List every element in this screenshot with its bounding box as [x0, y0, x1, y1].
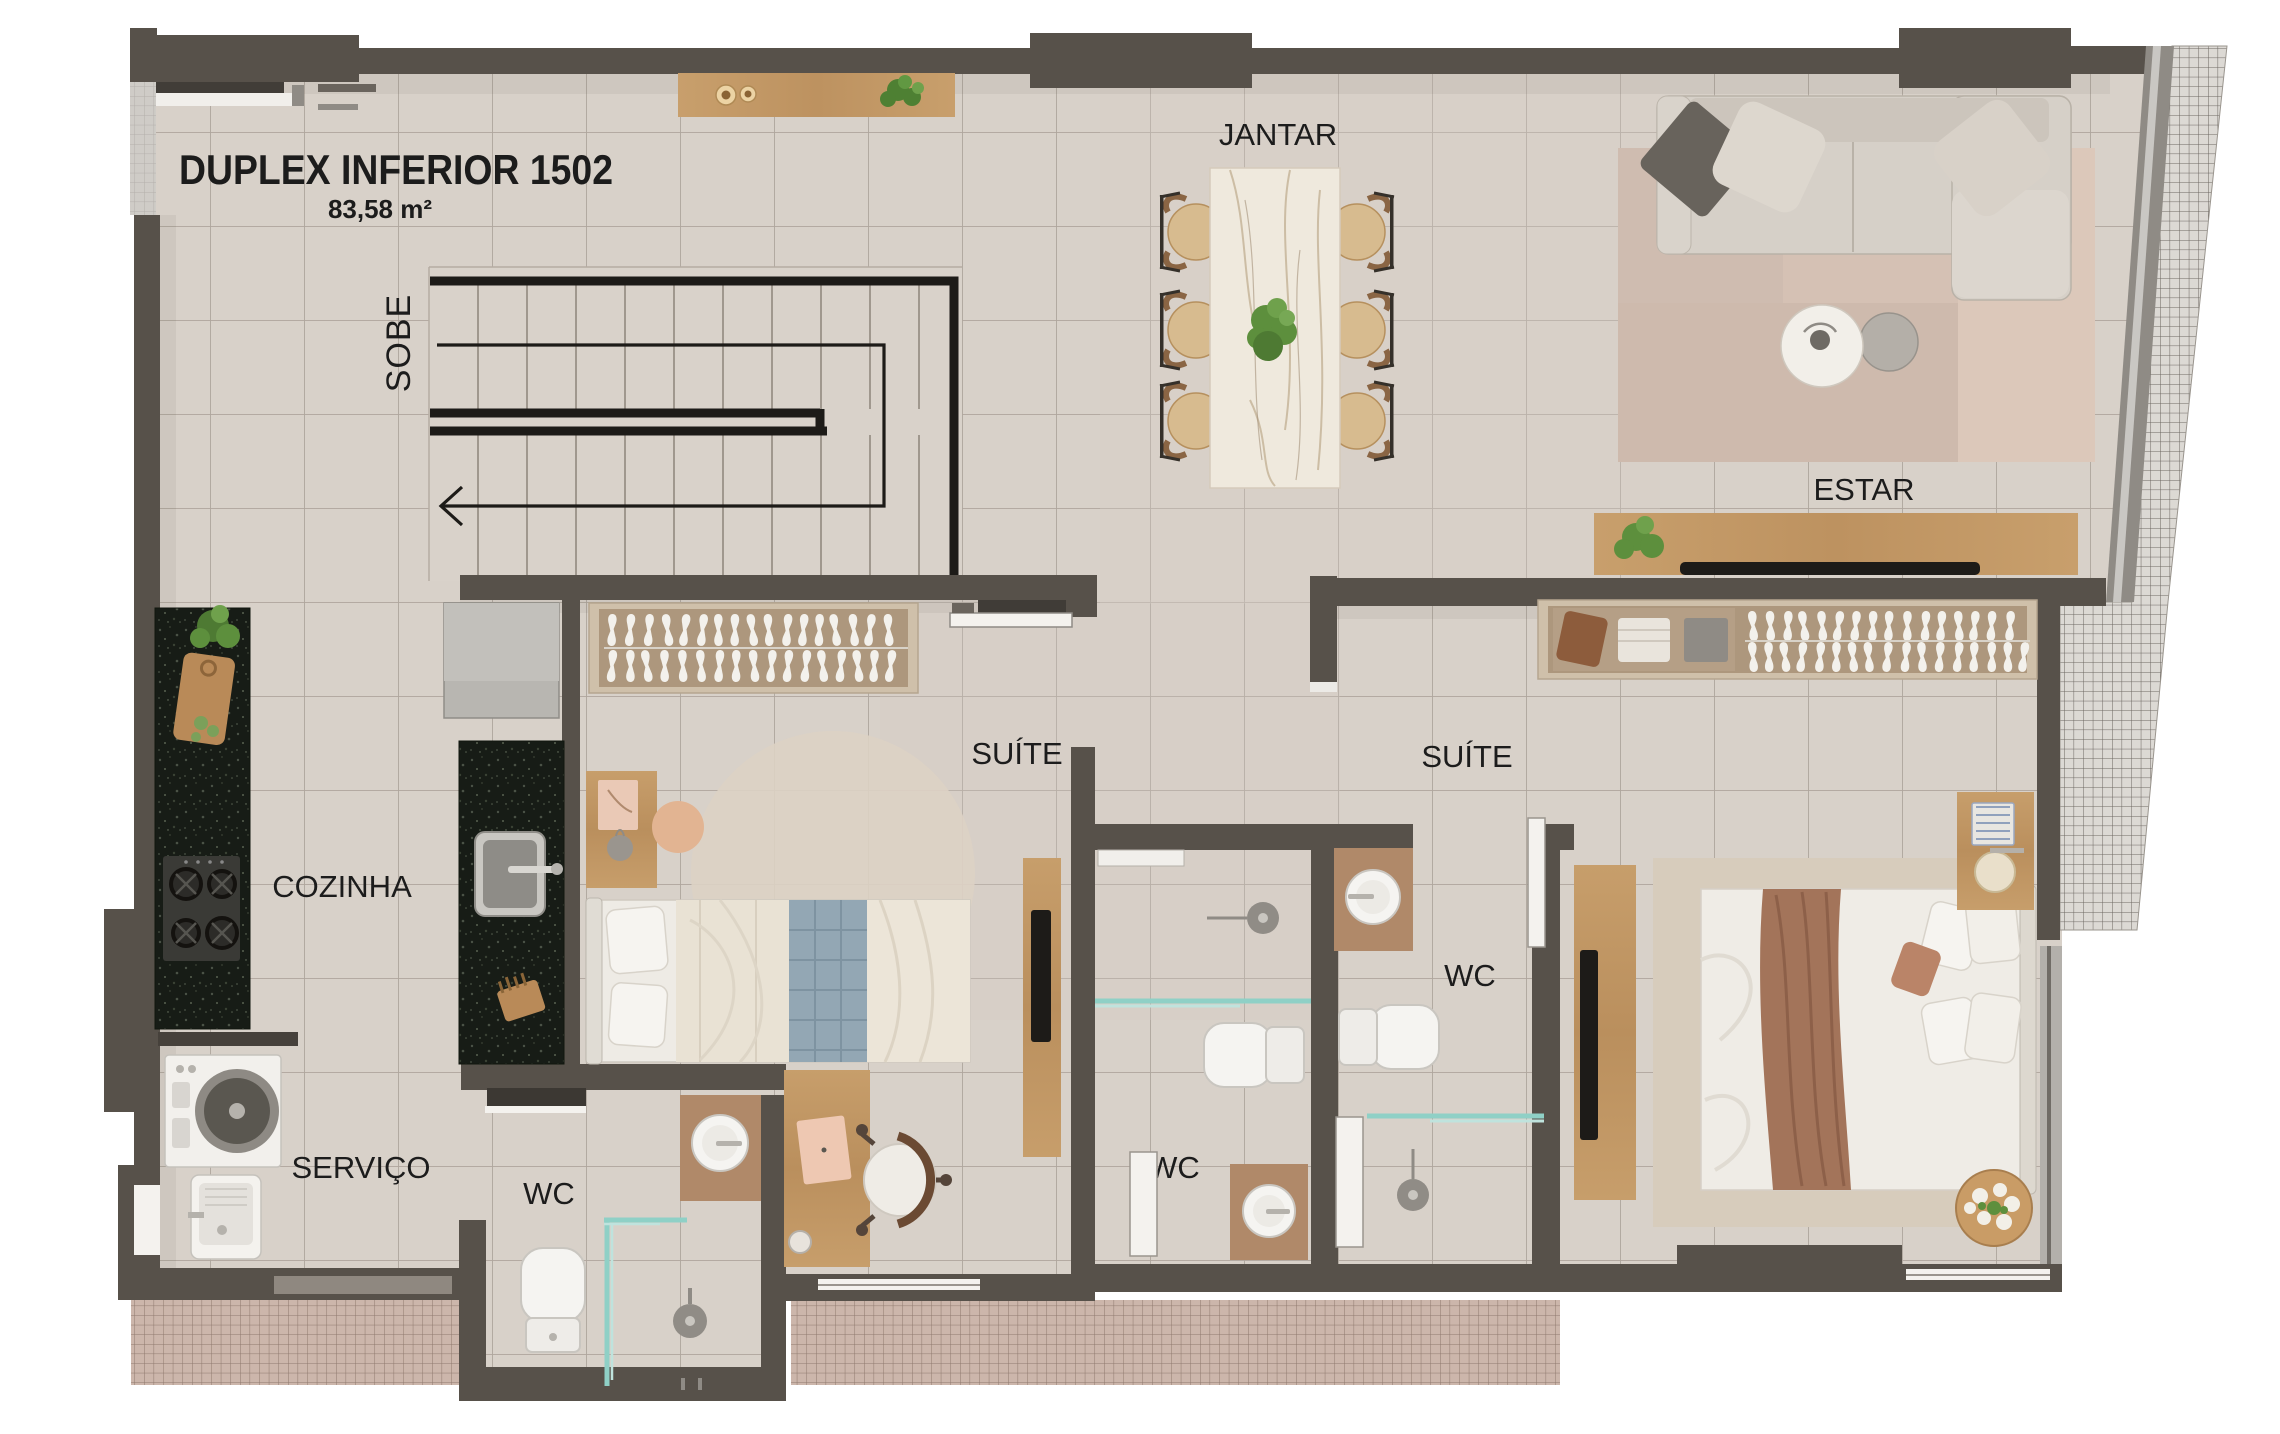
- svg-text:SUÍTE: SUÍTE: [1421, 739, 1512, 774]
- svg-text:83,58 m²: 83,58 m²: [328, 194, 432, 224]
- svg-text:ESTAR: ESTAR: [1813, 472, 1914, 507]
- svg-text:DUPLEX INFERIOR 1502: DUPLEX INFERIOR 1502: [179, 146, 613, 193]
- svg-text:WC: WC: [1444, 958, 1496, 993]
- svg-text:SUÍTE: SUÍTE: [971, 736, 1062, 771]
- svg-text:COZINHA: COZINHA: [272, 869, 412, 904]
- svg-text:WC: WC: [523, 1176, 575, 1211]
- svg-text:JANTAR: JANTAR: [1219, 117, 1337, 152]
- svg-text:SOBE: SOBE: [380, 294, 418, 392]
- svg-text:SERVIÇO: SERVIÇO: [292, 1150, 431, 1185]
